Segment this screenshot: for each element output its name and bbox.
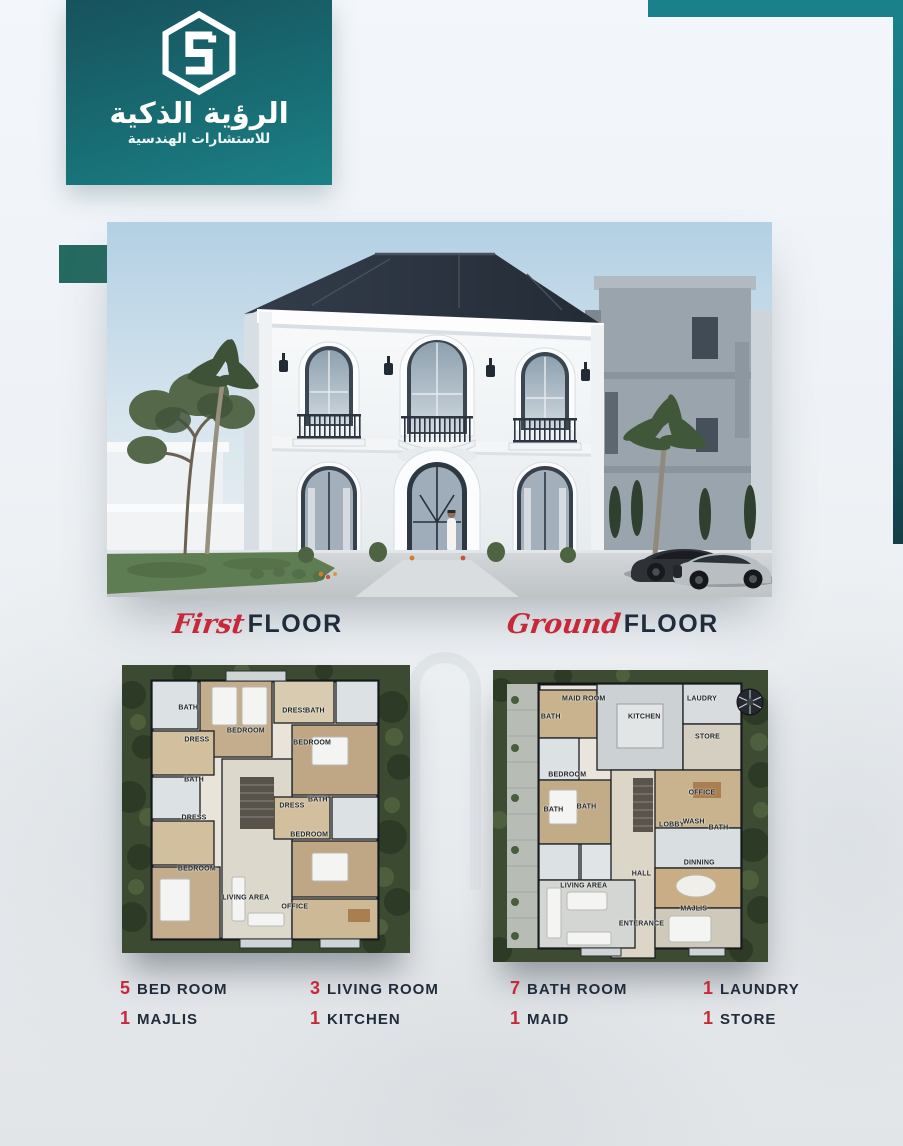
room-label: BATH (577, 804, 597, 811)
stat-count: 1 (310, 1008, 320, 1029)
room-label: WASH (683, 818, 705, 825)
hexagon-s-logo-icon (155, 9, 243, 97)
floor-plan-first: BATHBEDROOMDRESSDRESSBATHBEDROOMBATHDRES… (122, 665, 410, 953)
stat-label: MAJLIS (137, 1011, 198, 1028)
stat-count: 7 (510, 978, 520, 999)
room-label: MAID ROOM (562, 696, 605, 703)
room-label: OFFICE (689, 789, 716, 796)
room-label: MAJLIS (680, 906, 707, 913)
stat-count: 1 (703, 978, 713, 999)
stats-grid: 5 BED ROOM 1 MAJLIS 3 LIVING ROOM 1 KITC… (120, 978, 900, 1048)
company-tagline-arabic: للاستشارات الهندسية (128, 131, 270, 147)
floor-plan-ground: MAID ROOMBATHKITCHENLAUDRYSTOREBEDROOMOF… (493, 670, 768, 962)
room-label: BATH (709, 824, 729, 831)
room-label: BATH (544, 807, 564, 814)
room-label: DINNING (684, 859, 715, 866)
stat-item-bedroom: 5 BED ROOM (120, 978, 228, 998)
room-label: BEDROOM (227, 728, 265, 735)
stat-label: KITCHEN (327, 1011, 401, 1028)
room-label: DRESS (184, 736, 209, 743)
room-label: HALL (632, 871, 651, 878)
stat-item-kitchen: 1 KITCHEN (310, 1008, 439, 1028)
room-label: DRESS (279, 803, 304, 810)
poster-page: الرؤية الذكية للاستشارات الهندسية (0, 0, 903, 1146)
stat-label: MAID (527, 1011, 569, 1028)
room-label: LAUDRY (687, 696, 717, 703)
stat-count: 1 (703, 1008, 713, 1029)
top-accent-bar (648, 0, 903, 17)
stat-count: 1 (510, 1008, 520, 1029)
section-title-first-floor: FirstFLOOR (148, 608, 368, 639)
room-label: STORE (695, 734, 720, 741)
stat-item-majlis: 1 MAJLIS (120, 1008, 228, 1028)
right-accent-strip (893, 17, 903, 544)
stats-column-2: 3 LIVING ROOM 1 KITCHEN (310, 978, 439, 1038)
stat-item-store: 1 STORE (703, 1008, 800, 1028)
ground-floor-word: FLOOR (624, 610, 719, 639)
stat-count: 1 (120, 1008, 130, 1029)
room-label: DRESS (282, 708, 307, 715)
room-label: OFFICE (281, 903, 308, 910)
stat-item-laundry: 1 LAUNDRY (703, 978, 800, 998)
first-floor-word: FLOOR (248, 610, 343, 639)
section-title-ground-floor: GroundFLOOR (500, 608, 726, 639)
stat-item-living-room: 3 LIVING ROOM (310, 978, 439, 998)
room-label: BATH (178, 705, 198, 712)
first-floor-script-word: First (171, 609, 246, 640)
villa-illustration (107, 222, 772, 597)
stat-count: 5 (120, 978, 130, 999)
stat-item-maid: 1 MAID (510, 1008, 627, 1028)
room-label: LIVING AREA (222, 895, 269, 902)
teal-accent-square (59, 245, 108, 283)
stats-column-3: 7 BATH ROOM 1 MAID (510, 978, 627, 1038)
stat-label: BATH ROOM (527, 981, 627, 998)
ghost-arch-silhouette (409, 652, 481, 890)
stat-label: LIVING ROOM (327, 981, 439, 998)
room-label: LOBBY (659, 821, 685, 828)
room-label: BEDROOM (293, 739, 331, 746)
room-label: BEDROOM (548, 772, 586, 779)
stat-label: BED ROOM (137, 981, 228, 998)
ground-floor-script-word: Ground (505, 609, 622, 640)
stat-label: LAUNDRY (720, 981, 800, 998)
room-label: BEDROOM (178, 866, 216, 873)
room-label: KITCHEN (628, 713, 661, 720)
villa-render-image (107, 222, 772, 597)
room-label: DRESS (181, 814, 206, 821)
room-label: BATH (541, 713, 561, 720)
room-label: BATH (305, 708, 325, 715)
stat-count: 3 (310, 978, 320, 999)
stat-label: STORE (720, 1011, 776, 1028)
room-label: LIVING AREA (560, 883, 607, 890)
room-label: BEDROOM (290, 831, 328, 838)
room-label: BATH (184, 777, 204, 784)
stat-item-bathroom: 7 BATH ROOM (510, 978, 627, 998)
room-label: BATH (308, 797, 328, 804)
logo-box: الرؤية الذكية للاستشارات الهندسية (66, 0, 332, 185)
room-label: ENTERANCE (619, 921, 664, 928)
company-name-arabic: الرؤية الذكية (109, 98, 288, 128)
stats-column-4: 1 LAUNDRY 1 STORE (703, 978, 800, 1038)
stats-column-1: 5 BED ROOM 1 MAJLIS (120, 978, 228, 1038)
